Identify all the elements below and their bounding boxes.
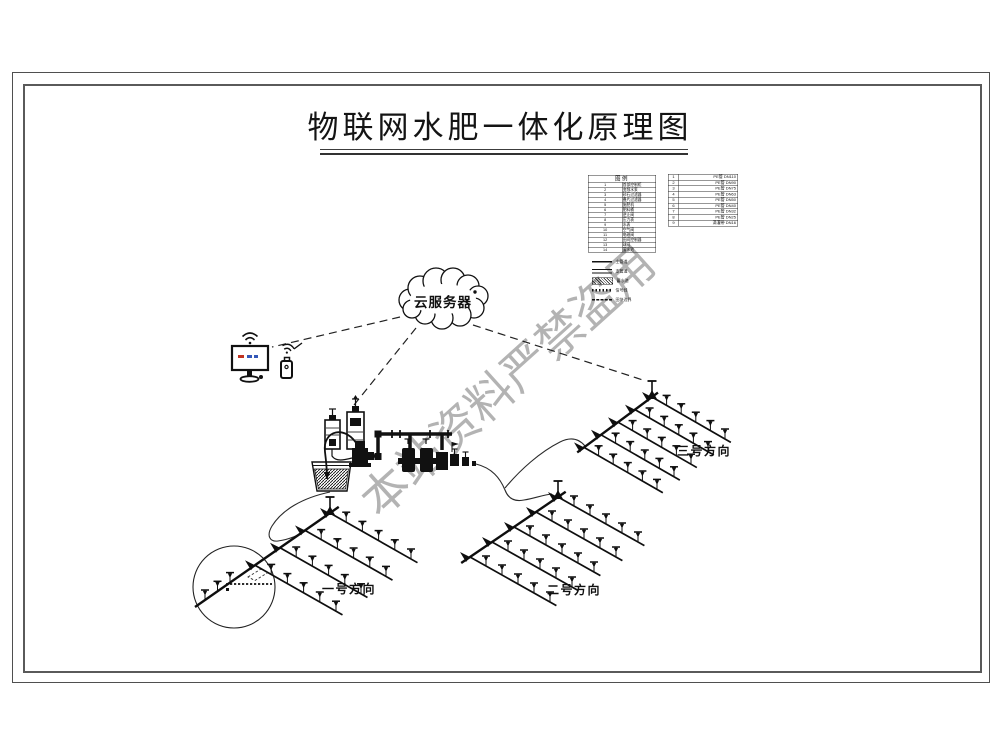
- link-cloud-field3: [473, 325, 646, 381]
- fertilizer-tank: [325, 409, 340, 449]
- field-grid-3: [574, 381, 731, 493]
- fertigation-station: [312, 395, 476, 491]
- field2-label: 二号方向: [547, 581, 601, 598]
- phone-icon: [281, 343, 302, 378]
- schematic-canvas: [0, 0, 1000, 750]
- link-cloud-station: [354, 328, 416, 405]
- field-grids: [195, 381, 731, 615]
- supply-pipe-field3: [505, 439, 585, 488]
- valve-row: [450, 449, 476, 466]
- filter-station: [398, 439, 459, 472]
- detail-circle: [193, 546, 275, 628]
- wifi-icon: [281, 343, 295, 355]
- wifi-icon: [246, 338, 255, 340]
- wireless-links: [272, 317, 646, 405]
- link-cloud-monitor: [272, 317, 400, 347]
- cloud-server-label: 云服务器: [404, 291, 482, 311]
- supply-pipe-field2: [476, 464, 552, 501]
- monitor-icon: [232, 333, 268, 382]
- field-grid-1: [195, 497, 417, 615]
- field1-label: 一号方向: [322, 580, 376, 597]
- water-basin: [312, 462, 351, 491]
- field3-label: 三号方向: [677, 442, 731, 459]
- drawing-sheet: { "title": {"text": "物联网水肥一体化原理图"}, "wat…: [0, 0, 1000, 750]
